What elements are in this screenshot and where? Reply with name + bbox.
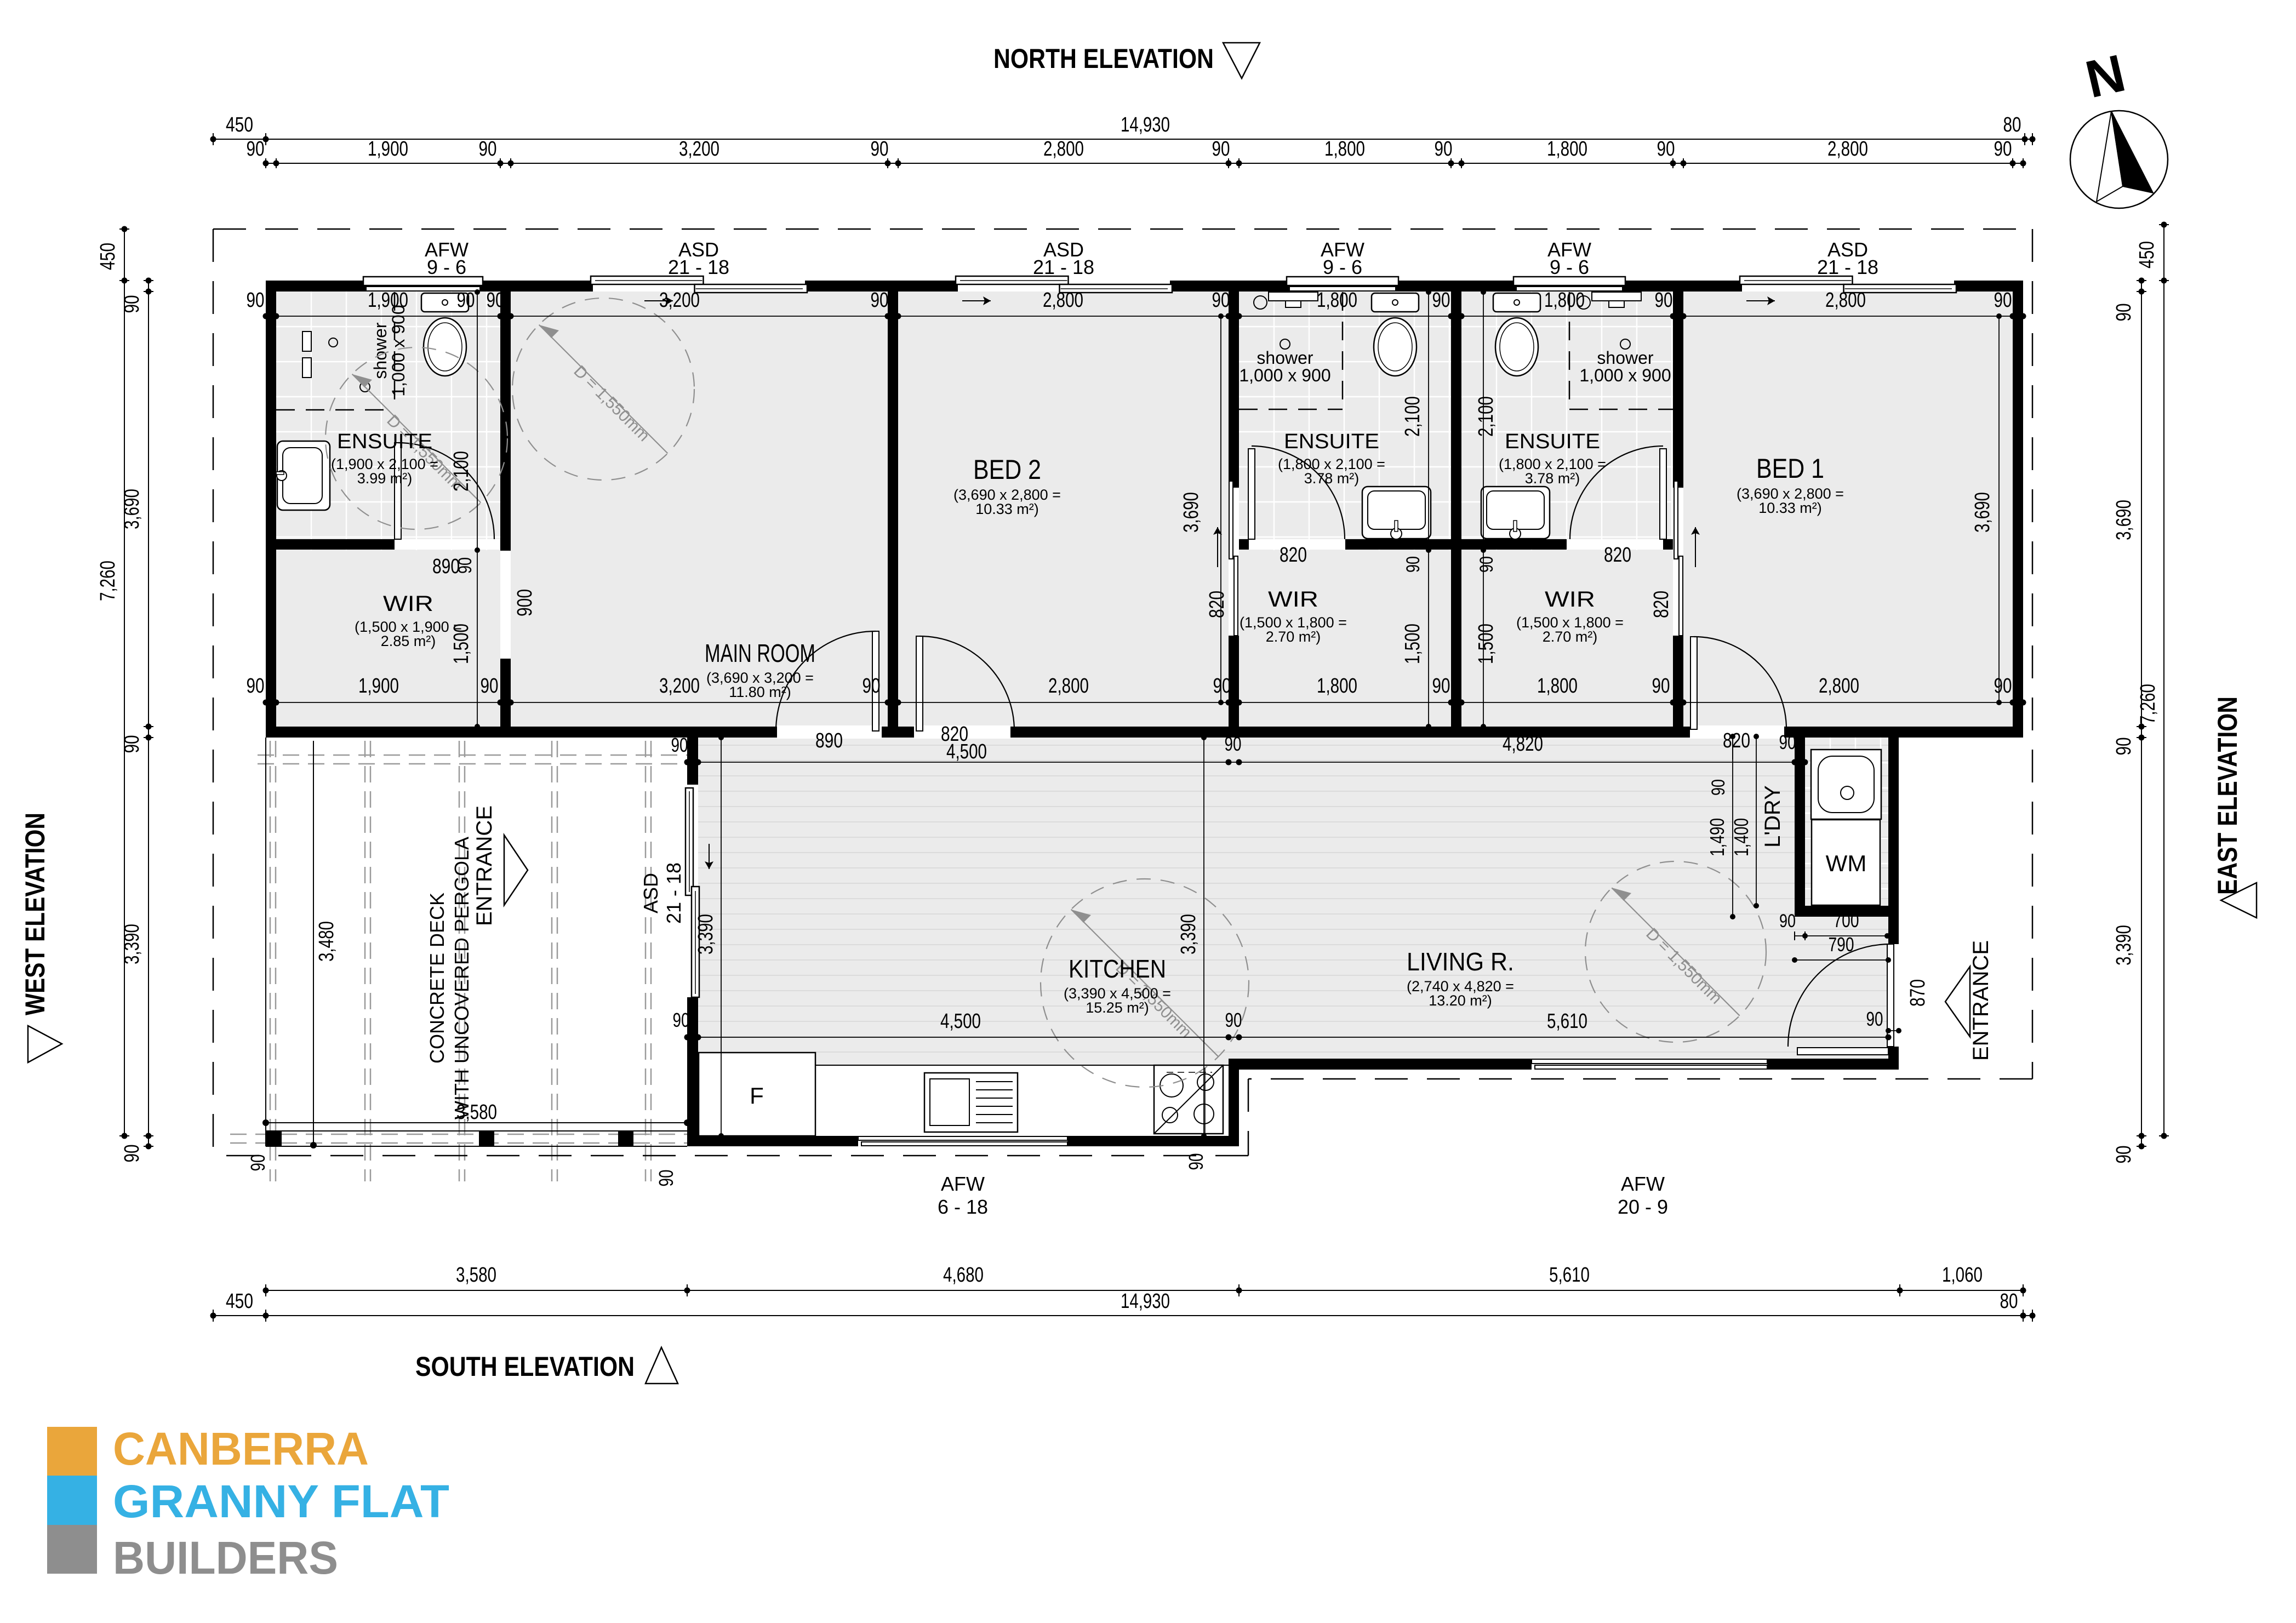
- svg-text:90: 90: [863, 675, 881, 698]
- svg-text:WIR: WIR: [383, 592, 433, 616]
- svg-text:3,390: 3,390: [2112, 925, 2135, 965]
- svg-text:1,500: 1,500: [450, 624, 473, 664]
- svg-text:90: 90: [247, 138, 265, 161]
- svg-text:1,800: 1,800: [1317, 289, 1357, 312]
- svg-text:90: 90: [1476, 556, 1497, 573]
- svg-text:90: 90: [1994, 675, 2012, 698]
- svg-text:21 - 18: 21 - 18: [1817, 256, 1878, 278]
- svg-text:4,500: 4,500: [946, 740, 987, 763]
- svg-text:90: 90: [1866, 1008, 1883, 1030]
- svg-text:1,000 x 900: 1,000 x 900: [1579, 365, 1671, 385]
- svg-text:15.25 m²): 15.25 m²): [1086, 999, 1149, 1016]
- svg-text:820: 820: [1280, 544, 1307, 567]
- svg-text:90: 90: [871, 289, 889, 312]
- svg-text:900: 900: [513, 589, 536, 616]
- svg-text:890: 890: [815, 729, 843, 752]
- svg-text:1,000 x 900: 1,000 x 900: [389, 305, 408, 396]
- svg-text:21 - 18: 21 - 18: [662, 862, 685, 924]
- svg-text:90: 90: [2112, 738, 2135, 756]
- svg-text:shower: shower: [370, 322, 390, 379]
- svg-text:90: 90: [1432, 675, 1450, 698]
- svg-text:90: 90: [1435, 138, 1453, 161]
- svg-text:90: 90: [247, 1155, 269, 1171]
- svg-text:1,800: 1,800: [1544, 289, 1585, 312]
- svg-text:3,690: 3,690: [121, 489, 144, 529]
- svg-text:L'DRY: L'DRY: [1761, 785, 1785, 848]
- svg-text:4,500: 4,500: [940, 1010, 981, 1033]
- svg-text:3,390: 3,390: [121, 924, 144, 964]
- svg-text:BED 1: BED 1: [1756, 453, 1824, 484]
- svg-text:7,260: 7,260: [2137, 684, 2160, 724]
- svg-text:LIVING R.: LIVING R.: [1407, 947, 1514, 976]
- svg-text:WIR: WIR: [1545, 587, 1595, 612]
- svg-text:90: 90: [455, 557, 476, 574]
- svg-text:2,800: 2,800: [1827, 138, 1868, 161]
- svg-text:2,800: 2,800: [1043, 289, 1083, 312]
- svg-text:F: F: [750, 1083, 764, 1108]
- svg-text:90: 90: [1185, 1153, 1207, 1170]
- svg-text:4,820: 4,820: [1503, 733, 1543, 756]
- svg-text:2.70 m²): 2.70 m²): [1543, 628, 1598, 645]
- svg-text:90: 90: [1652, 675, 1670, 698]
- svg-text:3,200: 3,200: [679, 138, 719, 161]
- svg-text:NORTH ELEVATION: NORTH ELEVATION: [993, 43, 1214, 74]
- svg-text:90: 90: [481, 675, 499, 698]
- svg-text:1,500: 1,500: [1475, 624, 1498, 664]
- svg-text:90: 90: [871, 138, 889, 161]
- svg-text:820: 820: [1206, 591, 1229, 618]
- svg-text:90: 90: [673, 1009, 690, 1031]
- svg-text:EAST ELEVATION: EAST ELEVATION: [2212, 696, 2243, 895]
- svg-text:BED 2: BED 2: [973, 454, 1041, 485]
- svg-text:5,610: 5,610: [1547, 1010, 1587, 1033]
- svg-text:GRANNY FLAT: GRANNY FLAT: [113, 1476, 449, 1527]
- svg-text:1,900: 1,900: [368, 289, 408, 312]
- svg-text:3,690: 3,690: [1971, 492, 1994, 533]
- svg-text:90: 90: [1779, 911, 1796, 931]
- svg-text:1,800: 1,800: [1537, 675, 1578, 698]
- svg-text:1,000 x 900: 1,000 x 900: [1239, 365, 1330, 385]
- svg-text:870: 870: [1906, 979, 1929, 1007]
- svg-text:ENSUITE: ENSUITE: [1284, 430, 1379, 453]
- svg-text:3,690: 3,690: [1180, 492, 1203, 533]
- svg-text:BUILDERS: BUILDERS: [113, 1532, 338, 1584]
- svg-text:1,800: 1,800: [1547, 138, 1587, 161]
- svg-text:ENSUITE: ENSUITE: [1505, 430, 1600, 453]
- svg-text:9 - 6: 9 - 6: [1323, 256, 1362, 278]
- svg-text:90: 90: [1432, 289, 1450, 312]
- svg-text:3,200: 3,200: [659, 289, 700, 312]
- svg-text:3,200: 3,200: [659, 675, 700, 698]
- svg-text:90: 90: [1708, 779, 1729, 796]
- svg-text:90: 90: [1225, 733, 1242, 755]
- svg-text:2,100: 2,100: [450, 451, 473, 492]
- svg-text:90: 90: [655, 1170, 677, 1187]
- svg-text:4,680: 4,680: [943, 1264, 984, 1287]
- svg-text:1,500: 1,500: [1401, 624, 1424, 664]
- svg-text:WM: WM: [1826, 850, 1867, 876]
- svg-text:2,800: 2,800: [1043, 138, 1084, 161]
- svg-text:14,930: 14,930: [1121, 113, 1170, 136]
- svg-text:CANBERRA: CANBERRA: [113, 1423, 369, 1475]
- svg-text:90: 90: [1655, 289, 1673, 312]
- svg-text:CONCRETE DECK: CONCRETE DECK: [426, 893, 448, 1064]
- svg-text:ASD: ASD: [639, 873, 662, 913]
- svg-text:1,800: 1,800: [1317, 675, 1357, 698]
- svg-text:450: 450: [96, 243, 119, 270]
- svg-text:7,260: 7,260: [96, 561, 119, 601]
- svg-text:ENTRANCE: ENTRANCE: [472, 805, 496, 926]
- svg-text:11.80 m²): 11.80 m²): [729, 684, 791, 700]
- svg-text:80: 80: [2000, 1290, 2018, 1313]
- svg-text:90: 90: [1994, 138, 2012, 161]
- svg-text:1,900: 1,900: [368, 138, 408, 161]
- svg-text:21 - 18: 21 - 18: [1033, 256, 1094, 278]
- svg-text:450: 450: [2135, 241, 2158, 268]
- svg-text:AFW: AFW: [1621, 1173, 1665, 1195]
- svg-text:90: 90: [479, 138, 497, 161]
- svg-text:1,060: 1,060: [1942, 1264, 1983, 1287]
- svg-text:WEST ELEVATION: WEST ELEVATION: [20, 813, 50, 1015]
- svg-text:9 - 6: 9 - 6: [427, 256, 466, 278]
- svg-text:2.85 m²): 2.85 m²): [381, 633, 436, 649]
- svg-text:700: 700: [1834, 909, 1859, 931]
- svg-text:3,690: 3,690: [2112, 500, 2135, 540]
- svg-text:2,800: 2,800: [1819, 675, 1859, 698]
- svg-text:14,930: 14,930: [1121, 1290, 1170, 1313]
- svg-text:90: 90: [1403, 556, 1424, 573]
- svg-text:90: 90: [121, 1145, 144, 1163]
- svg-text:90: 90: [1994, 289, 2012, 312]
- svg-text:3,390: 3,390: [694, 914, 717, 955]
- svg-text:13.20 m²): 13.20 m²): [1429, 992, 1492, 1009]
- svg-text:90: 90: [1212, 138, 1230, 161]
- svg-text:80: 80: [2003, 113, 2021, 136]
- svg-text:2.70 m²): 2.70 m²): [1266, 628, 1321, 645]
- svg-text:90: 90: [2112, 1146, 2135, 1164]
- svg-text:3.99 m²): 3.99 m²): [357, 470, 413, 487]
- svg-text:450: 450: [226, 1290, 253, 1313]
- svg-text:820: 820: [1723, 729, 1750, 752]
- svg-text:3,580: 3,580: [456, 1264, 496, 1287]
- svg-text:90: 90: [247, 289, 265, 312]
- svg-text:3.78 m²): 3.78 m²): [1525, 470, 1580, 487]
- svg-text:KITCHEN: KITCHEN: [1069, 955, 1166, 983]
- svg-text:90: 90: [487, 289, 505, 312]
- svg-text:SOUTH ELEVATION: SOUTH ELEVATION: [415, 1351, 635, 1382]
- svg-text:10.33 m²): 10.33 m²): [1758, 500, 1822, 516]
- svg-text:ENTRANCE: ENTRANCE: [1969, 940, 1993, 1061]
- svg-text:1,490: 1,490: [1706, 818, 1728, 856]
- svg-text:2,100: 2,100: [1401, 396, 1424, 437]
- svg-text:shower: shower: [1597, 348, 1654, 368]
- svg-text:5,610: 5,610: [1549, 1264, 1590, 1287]
- svg-text:10.33 m²): 10.33 m²): [975, 501, 1039, 517]
- svg-text:2,100: 2,100: [1475, 396, 1498, 437]
- svg-text:2,800: 2,800: [1048, 675, 1089, 698]
- svg-text:790: 790: [1829, 933, 1854, 956]
- svg-text:6 - 18: 6 - 18: [938, 1196, 988, 1218]
- svg-text:AFW: AFW: [941, 1173, 985, 1195]
- svg-text:ENSUITE: ENSUITE: [337, 430, 432, 453]
- svg-text:90: 90: [1225, 1009, 1242, 1031]
- svg-text:90: 90: [121, 735, 144, 753]
- svg-text:90: 90: [671, 734, 688, 756]
- svg-text:90: 90: [247, 675, 265, 698]
- svg-text:1,800: 1,800: [1324, 138, 1365, 161]
- svg-text:MAIN ROOM: MAIN ROOM: [705, 639, 815, 667]
- svg-text:90: 90: [457, 289, 475, 312]
- svg-text:9 - 6: 9 - 6: [1550, 256, 1589, 278]
- svg-text:90: 90: [1779, 731, 1796, 753]
- svg-text:90: 90: [1213, 675, 1231, 698]
- svg-text:21 - 18: 21 - 18: [668, 256, 729, 278]
- svg-text:20 - 9: 20 - 9: [1618, 1196, 1668, 1218]
- svg-text:90: 90: [1657, 138, 1675, 161]
- svg-text:820: 820: [1650, 591, 1673, 618]
- svg-text:2,800: 2,800: [1825, 289, 1866, 312]
- svg-text:90: 90: [121, 295, 144, 313]
- svg-text:shower: shower: [1256, 348, 1313, 368]
- svg-text:WITH UNCOVERED PERGOLA: WITH UNCOVERED PERGOLA: [450, 837, 473, 1119]
- svg-text:3,480: 3,480: [315, 921, 338, 962]
- svg-text:1,900: 1,900: [358, 675, 399, 698]
- svg-text:1,400: 1,400: [1730, 818, 1752, 856]
- svg-text:WIR: WIR: [1268, 587, 1318, 612]
- svg-text:3.78 m²): 3.78 m²): [1304, 470, 1360, 487]
- svg-text:820: 820: [1604, 544, 1631, 567]
- svg-text:90: 90: [2112, 304, 2135, 322]
- svg-text:450: 450: [226, 113, 253, 136]
- svg-text:3,390: 3,390: [1177, 914, 1200, 955]
- svg-text:90: 90: [1212, 289, 1230, 312]
